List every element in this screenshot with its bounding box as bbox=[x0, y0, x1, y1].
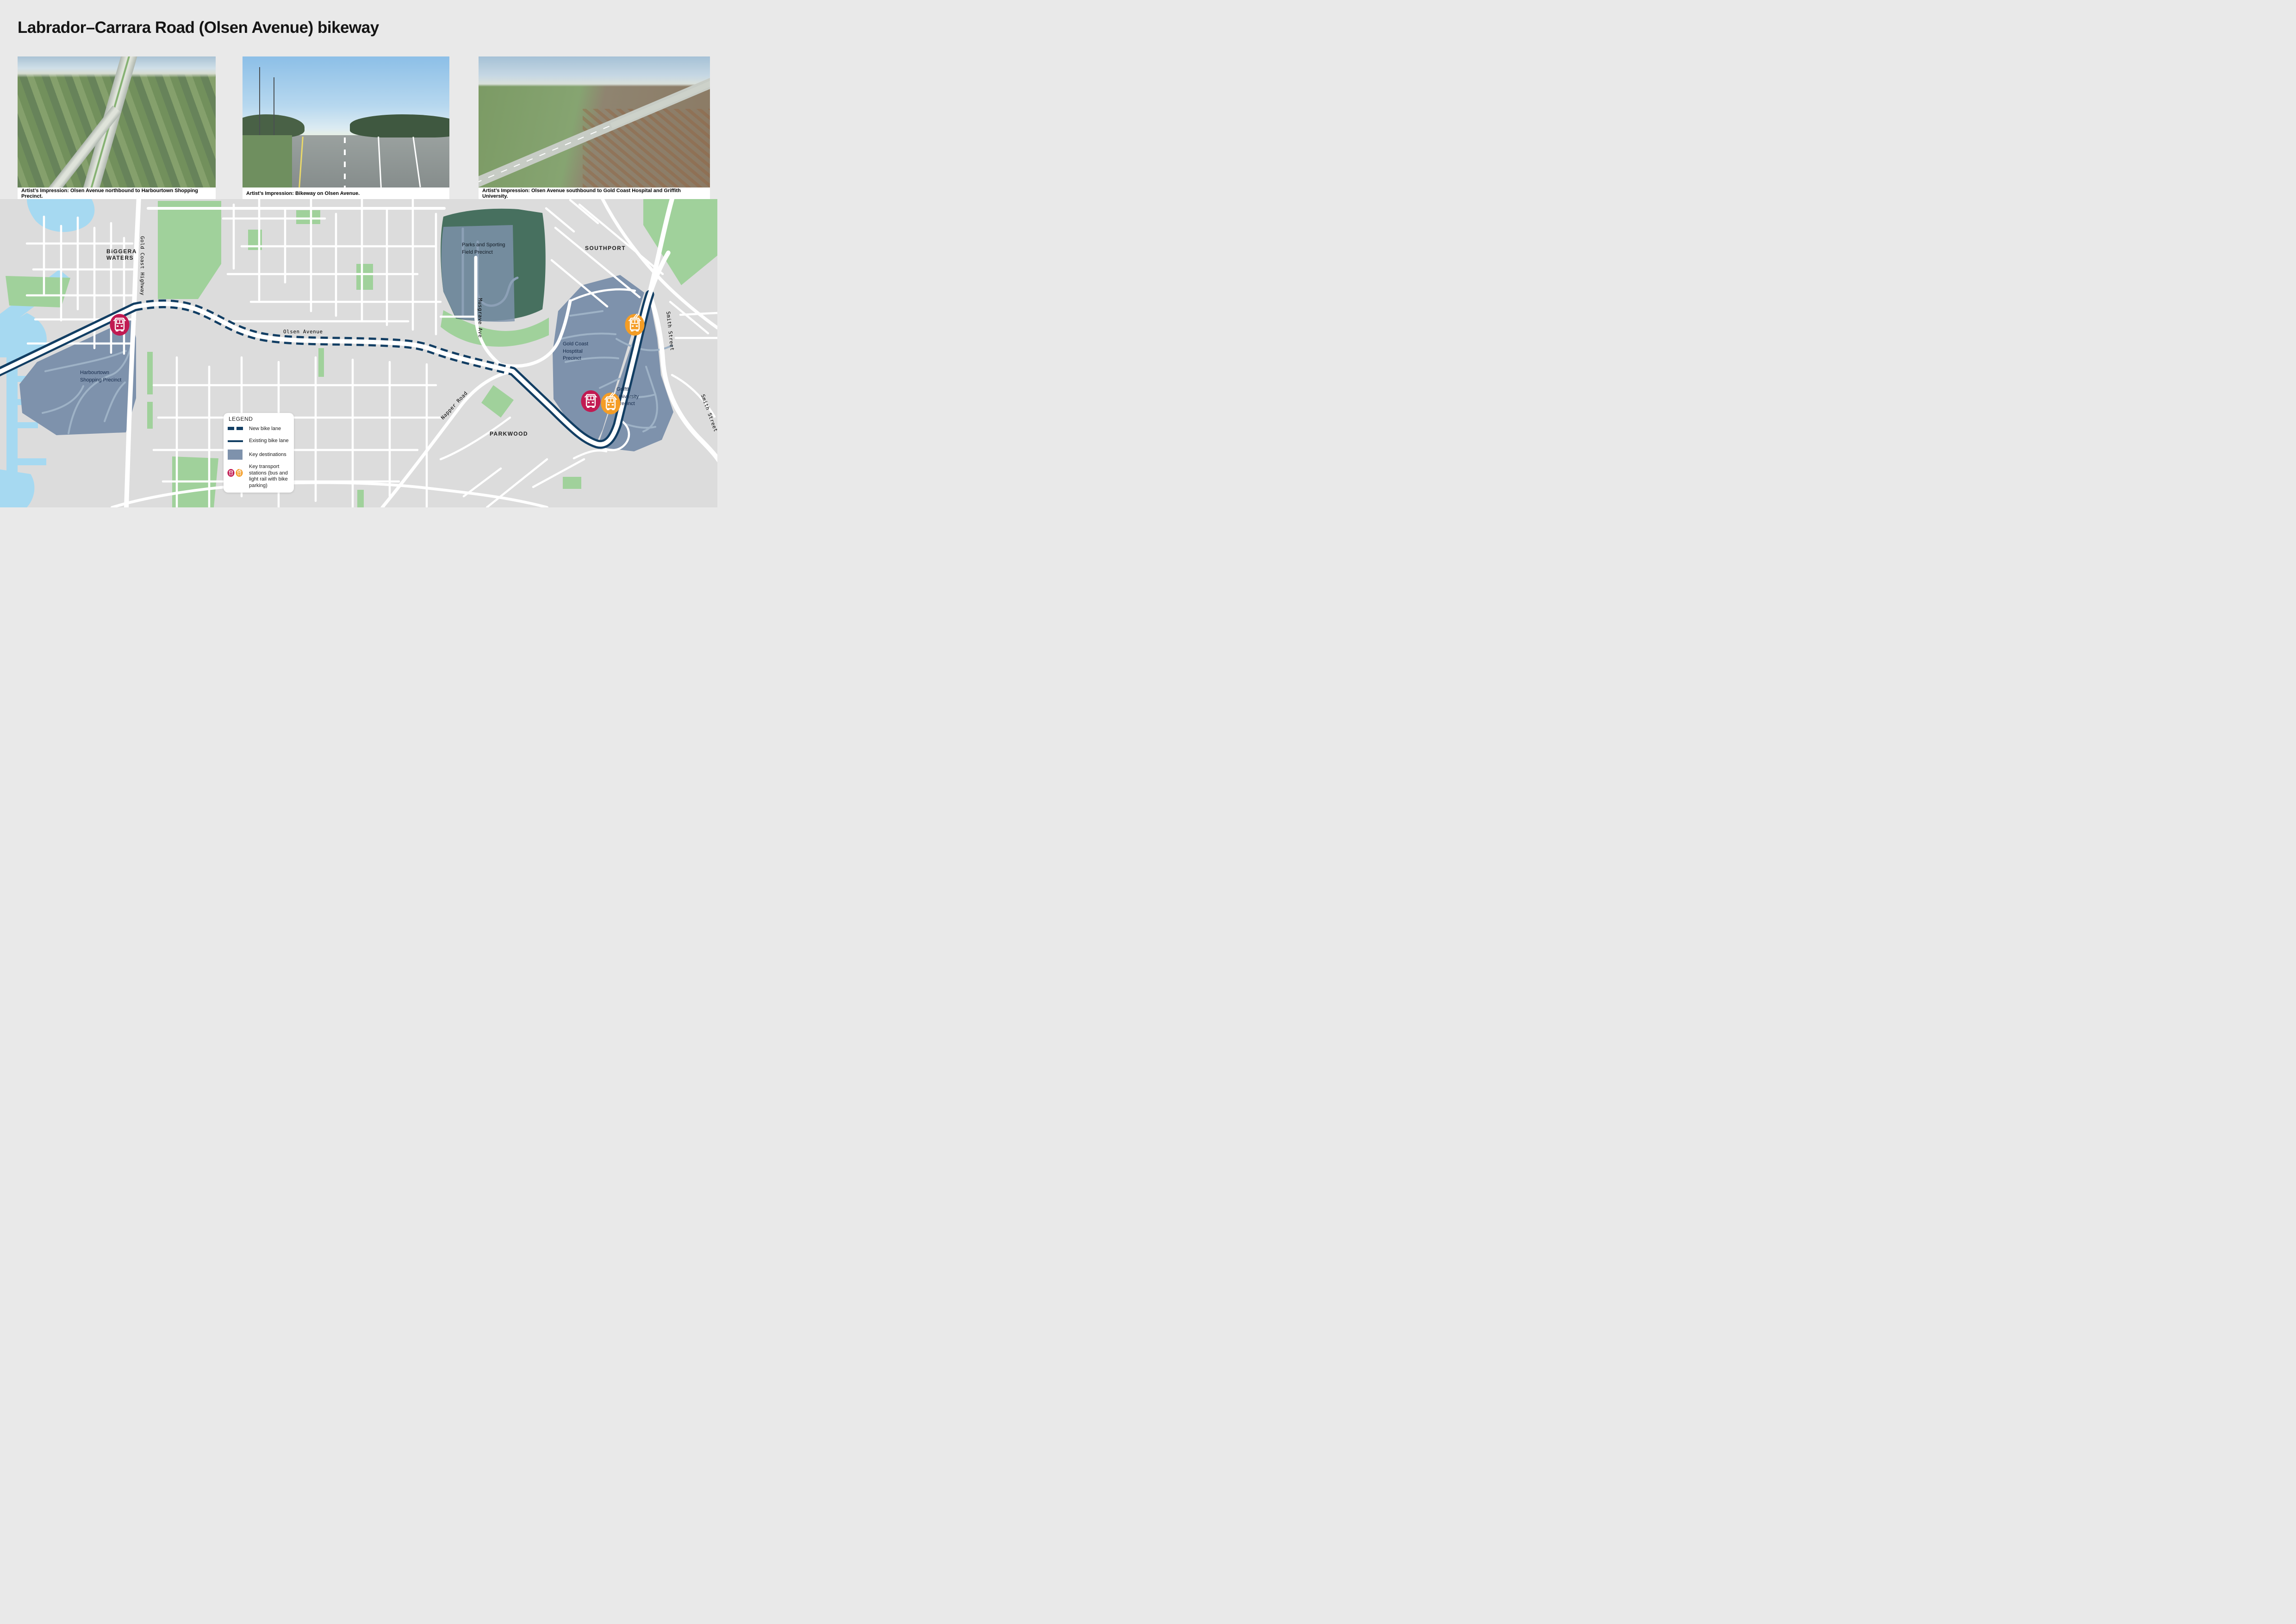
legend-new-bike-lane-label: New bike lane bbox=[249, 426, 281, 432]
photo-caption: Artist’s Impression: Olsen Avenue southb… bbox=[479, 187, 710, 199]
photo-lane-line bbox=[344, 137, 346, 187]
light-rail-station-icon bbox=[600, 392, 621, 417]
bus-station-icon bbox=[580, 390, 601, 415]
legend-key-destinations-label: Key destinations bbox=[249, 452, 286, 458]
legend-title: LEGEND bbox=[229, 416, 253, 422]
new-bike-lane-swatch bbox=[228, 427, 243, 430]
photo-verge-shape bbox=[243, 135, 292, 187]
existing-bike-lane-swatch bbox=[228, 440, 243, 442]
suburb-label-southport: SOUTHPORT bbox=[585, 245, 626, 251]
precinct-label-parks-sporting-field: Parks and Sporting Field Precinct bbox=[462, 242, 509, 256]
photo-caption: Artist’s Impression: Bikeway on Olsen Av… bbox=[243, 187, 449, 199]
bus-station-icon bbox=[227, 467, 235, 479]
photo-lane-line bbox=[299, 137, 304, 187]
legend-key-transport-label: Key transport stations (bus and light ra… bbox=[249, 464, 292, 489]
bus-station-icon bbox=[109, 313, 130, 338]
precinct-label-gold-coast-hospital: Gold Coast Hosptital Precinct bbox=[563, 341, 602, 362]
photo-olsen-northbound bbox=[18, 56, 216, 187]
key-transport-swatches bbox=[227, 467, 243, 479]
precinct-label-harbourtown: Harbourtown Shopping Precinct bbox=[80, 369, 123, 384]
light-rail-station-icon bbox=[236, 467, 243, 479]
bikeway-poster: Labrador–Carrara Road (Olsen Avenue) bik… bbox=[0, 0, 717, 507]
page-title: Labrador–Carrara Road (Olsen Avenue) bik… bbox=[18, 19, 379, 37]
road-label-olsen-avenue: Olsen Avenue bbox=[283, 329, 323, 335]
legend-existing-bike-lane-label: Existing bike lane bbox=[249, 438, 289, 444]
light-rail-station-icon bbox=[624, 313, 645, 338]
key-destinations-swatch bbox=[228, 450, 243, 460]
map-legend: LEGEND New bike lane Existing bike lane … bbox=[224, 413, 294, 493]
photo-lane-line bbox=[413, 137, 421, 187]
dash-swatch-segment bbox=[236, 427, 243, 430]
road-label-musgrave-ave: Musgrave Ave bbox=[477, 298, 483, 337]
photo-rooftops-shape bbox=[583, 109, 710, 187]
photo-lane-line bbox=[378, 137, 382, 187]
suburb-label-parkwood: PARKWOOD bbox=[490, 431, 528, 437]
photo-trees-shape bbox=[350, 114, 449, 138]
bikeway-map: BiGGERA WATERS SOUTHPORT PARKWOOD Gold C… bbox=[0, 199, 717, 507]
photo-bikeway-street-view bbox=[243, 56, 449, 187]
precinct-label-griffith-university: Griffth University Precinct bbox=[616, 386, 653, 408]
road-label-gold-coast-highway: Gold Coast Highway bbox=[139, 236, 145, 295]
photo-olsen-southbound bbox=[479, 56, 710, 187]
photo-light-pole bbox=[274, 77, 274, 135]
dash-swatch-segment bbox=[228, 427, 234, 430]
photo-caption: Artist’s Impression: Olsen Avenue northb… bbox=[18, 187, 216, 199]
photo-light-pole bbox=[259, 67, 260, 135]
